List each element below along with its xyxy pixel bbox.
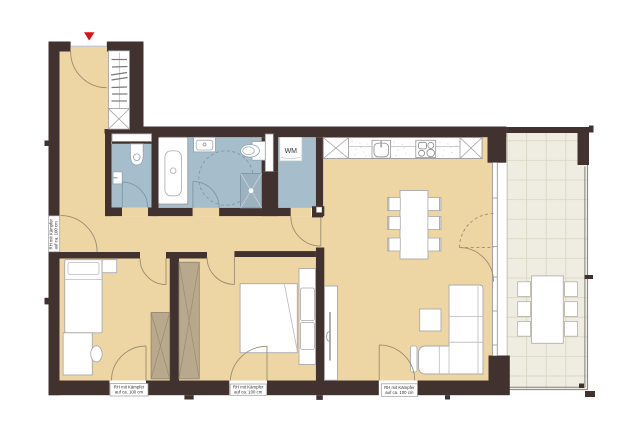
svg-text:auf ca. 100 cm: auf ca. 100 cm (385, 390, 414, 395)
svg-text:WM: WM (285, 148, 298, 155)
svg-text:auf ca. 100 cm: auf ca. 100 cm (115, 390, 144, 395)
svg-text:auf ca. 100 cm: auf ca. 100 cm (53, 221, 58, 250)
svg-text:auf ca. 100 cm: auf ca. 100 cm (234, 389, 263, 394)
